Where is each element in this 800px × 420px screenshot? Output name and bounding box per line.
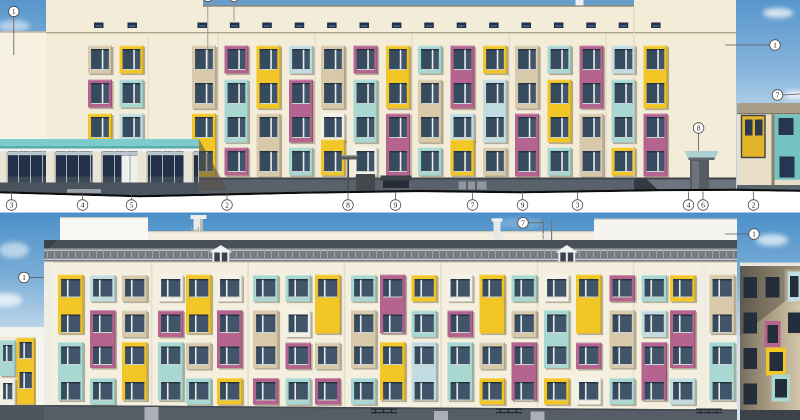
svg-text:2: 2 [225,201,229,210]
svg-text:4: 4 [81,201,85,210]
svg-text:3: 3 [10,201,14,210]
svg-text:1: 1 [773,41,777,50]
svg-text:6: 6 [701,201,705,210]
svg-text:5: 5 [130,201,134,210]
svg-text:4: 4 [687,201,691,210]
svg-text:8: 8 [346,201,350,210]
svg-text:1: 1 [22,273,26,282]
svg-text:7: 7 [471,201,475,210]
svg-text:1: 1 [752,230,756,239]
svg-text:9: 9 [394,201,398,210]
svg-text:8: 8 [697,124,701,133]
svg-text:3: 3 [576,201,580,210]
svg-text:7: 7 [521,218,525,227]
svg-text:9: 9 [521,201,525,210]
svg-text:2: 2 [752,201,756,210]
svg-text:7: 7 [776,91,780,100]
svg-text:1: 1 [12,7,16,16]
